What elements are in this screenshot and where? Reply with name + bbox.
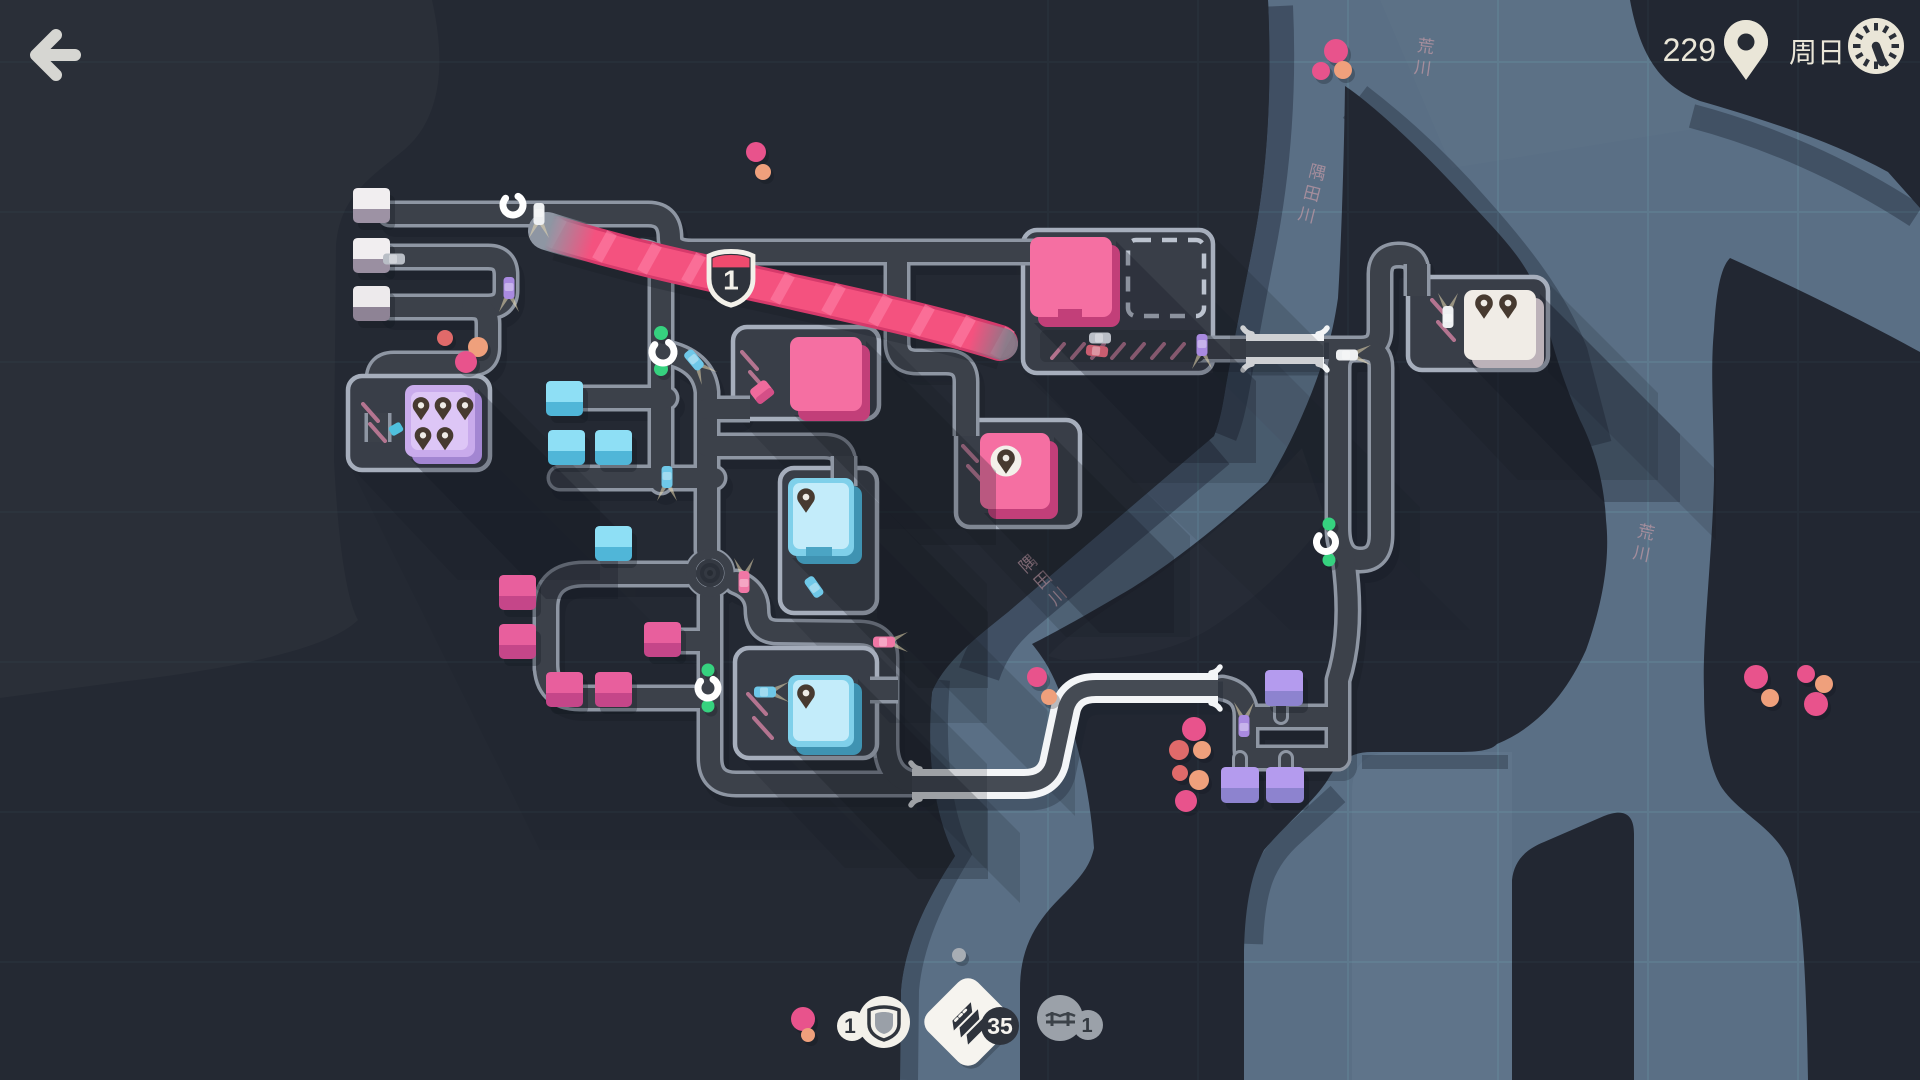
svg-text:1: 1 [844, 1015, 856, 1038]
svg-text:35: 35 [987, 1013, 1013, 1039]
svg-text:229: 229 [1663, 32, 1716, 68]
svg-text:川: 川 [1413, 58, 1432, 79]
svg-text:荒: 荒 [1416, 36, 1435, 57]
svg-text:1: 1 [723, 264, 739, 295]
svg-text:周日: 周日 [1789, 37, 1845, 68]
svg-text:1: 1 [1081, 1015, 1092, 1037]
